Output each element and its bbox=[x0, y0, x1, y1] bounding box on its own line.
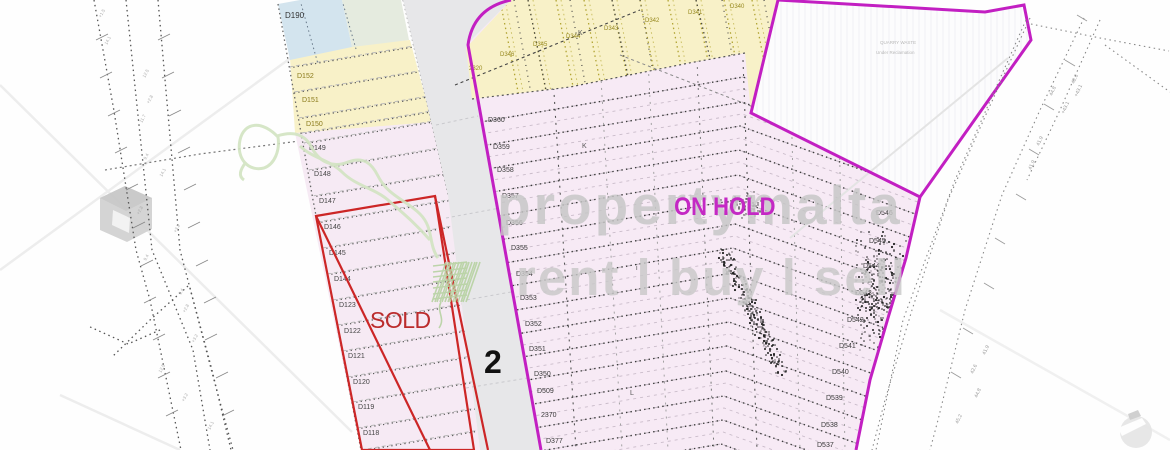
svg-text:D538: D538 bbox=[821, 422, 838, 429]
svg-text:D540: D540 bbox=[832, 369, 849, 376]
svg-text:D541: D541 bbox=[839, 343, 856, 350]
svg-text:D343: D343 bbox=[604, 26, 619, 32]
svg-text:D358: D358 bbox=[497, 167, 514, 174]
svg-text:D123: D123 bbox=[339, 302, 356, 309]
svg-text:2: 2 bbox=[484, 344, 502, 380]
svg-text:D346: D346 bbox=[500, 52, 515, 58]
svg-text:D509: D509 bbox=[537, 388, 554, 395]
svg-text:D341: D341 bbox=[688, 10, 703, 16]
svg-text:D152: D152 bbox=[297, 73, 314, 80]
svg-text:D345: D345 bbox=[533, 42, 548, 48]
svg-text:D359: D359 bbox=[493, 144, 510, 151]
svg-text:rent l buy l sell: rent l buy l sell bbox=[516, 249, 907, 306]
svg-text:D151: D151 bbox=[302, 97, 319, 104]
svg-text:D537: D537 bbox=[817, 442, 834, 449]
svg-text:D122: D122 bbox=[344, 328, 361, 335]
svg-text:Under Reclamation: Under Reclamation bbox=[876, 50, 915, 55]
svg-text:D539: D539 bbox=[826, 395, 843, 402]
svg-text:D121: D121 bbox=[348, 353, 365, 360]
svg-text:D545: D545 bbox=[869, 238, 886, 245]
svg-text:2370: 2370 bbox=[541, 412, 557, 419]
svg-text:D118: D118 bbox=[363, 430, 379, 437]
svg-text:D120: D120 bbox=[353, 379, 370, 386]
svg-text:D377: D377 bbox=[546, 438, 563, 445]
svg-text:L: L bbox=[630, 390, 634, 397]
svg-text:SOLD: SOLD bbox=[370, 307, 431, 333]
svg-text:D146: D146 bbox=[324, 224, 341, 231]
svg-text:D342: D342 bbox=[645, 18, 660, 24]
svg-text:D352: D352 bbox=[525, 321, 542, 328]
svg-text:D148: D148 bbox=[314, 171, 331, 178]
svg-text:D150: D150 bbox=[306, 121, 323, 128]
svg-text:D340: D340 bbox=[730, 4, 745, 10]
svg-text:D360: D360 bbox=[488, 117, 505, 124]
svg-text:D542: D542 bbox=[847, 317, 864, 324]
svg-text:D119: D119 bbox=[358, 404, 374, 411]
svg-text:D190: D190 bbox=[285, 11, 305, 20]
svg-text:D147: D147 bbox=[319, 198, 336, 205]
svg-text:K: K bbox=[578, 30, 583, 37]
svg-text:ON HOLD: ON HOLD bbox=[674, 193, 775, 221]
svg-text:D350: D350 bbox=[534, 371, 551, 378]
svg-text:QUARRY WASTE: QUARRY WASTE bbox=[880, 40, 916, 45]
svg-text:D145: D145 bbox=[329, 250, 346, 257]
svg-text:D351: D351 bbox=[529, 346, 546, 353]
svg-text:K: K bbox=[582, 143, 587, 150]
